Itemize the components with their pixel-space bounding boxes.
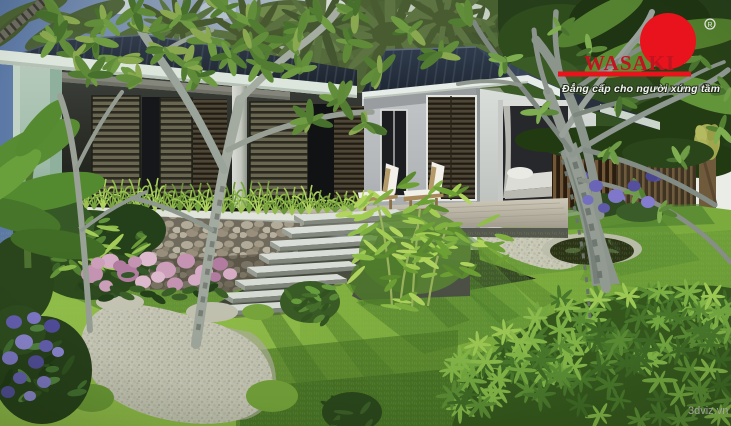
svg-text:WASAKI: WASAKI [584,51,675,75]
svg-text:R: R [707,22,712,29]
svg-text:Đẳng cấp cho người xứng tầm: Đẳng cấp cho người xứng tầm [562,82,720,95]
svg-text:3dviz.vn: 3dviz.vn [688,405,728,417]
